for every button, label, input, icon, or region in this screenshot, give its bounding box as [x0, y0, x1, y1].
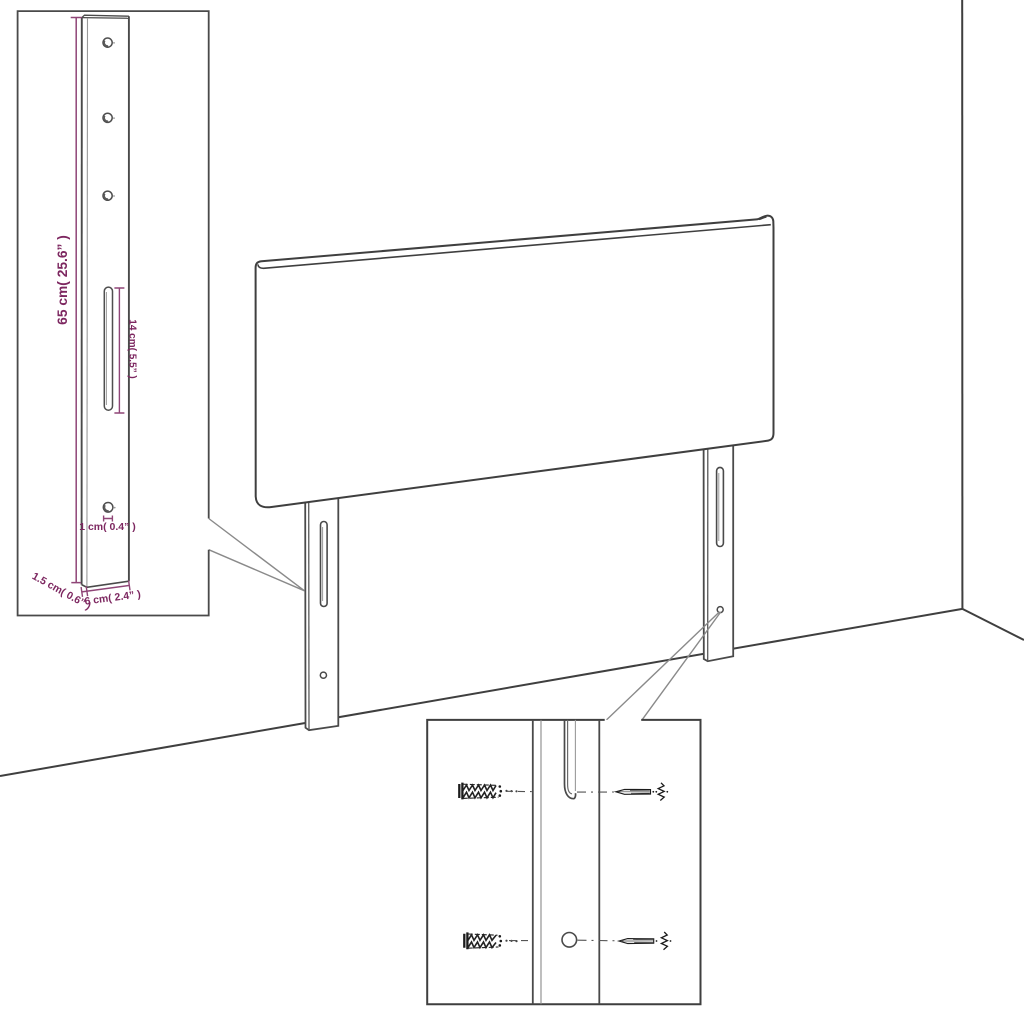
svg-text:65 cm( 25.6” ): 65 cm( 25.6” ) [55, 235, 70, 325]
svg-text:1 cm( 0.4” ): 1 cm( 0.4” ) [79, 521, 136, 533]
svg-text:14 cm( 5.5” ): 14 cm( 5.5” ) [126, 319, 137, 378]
